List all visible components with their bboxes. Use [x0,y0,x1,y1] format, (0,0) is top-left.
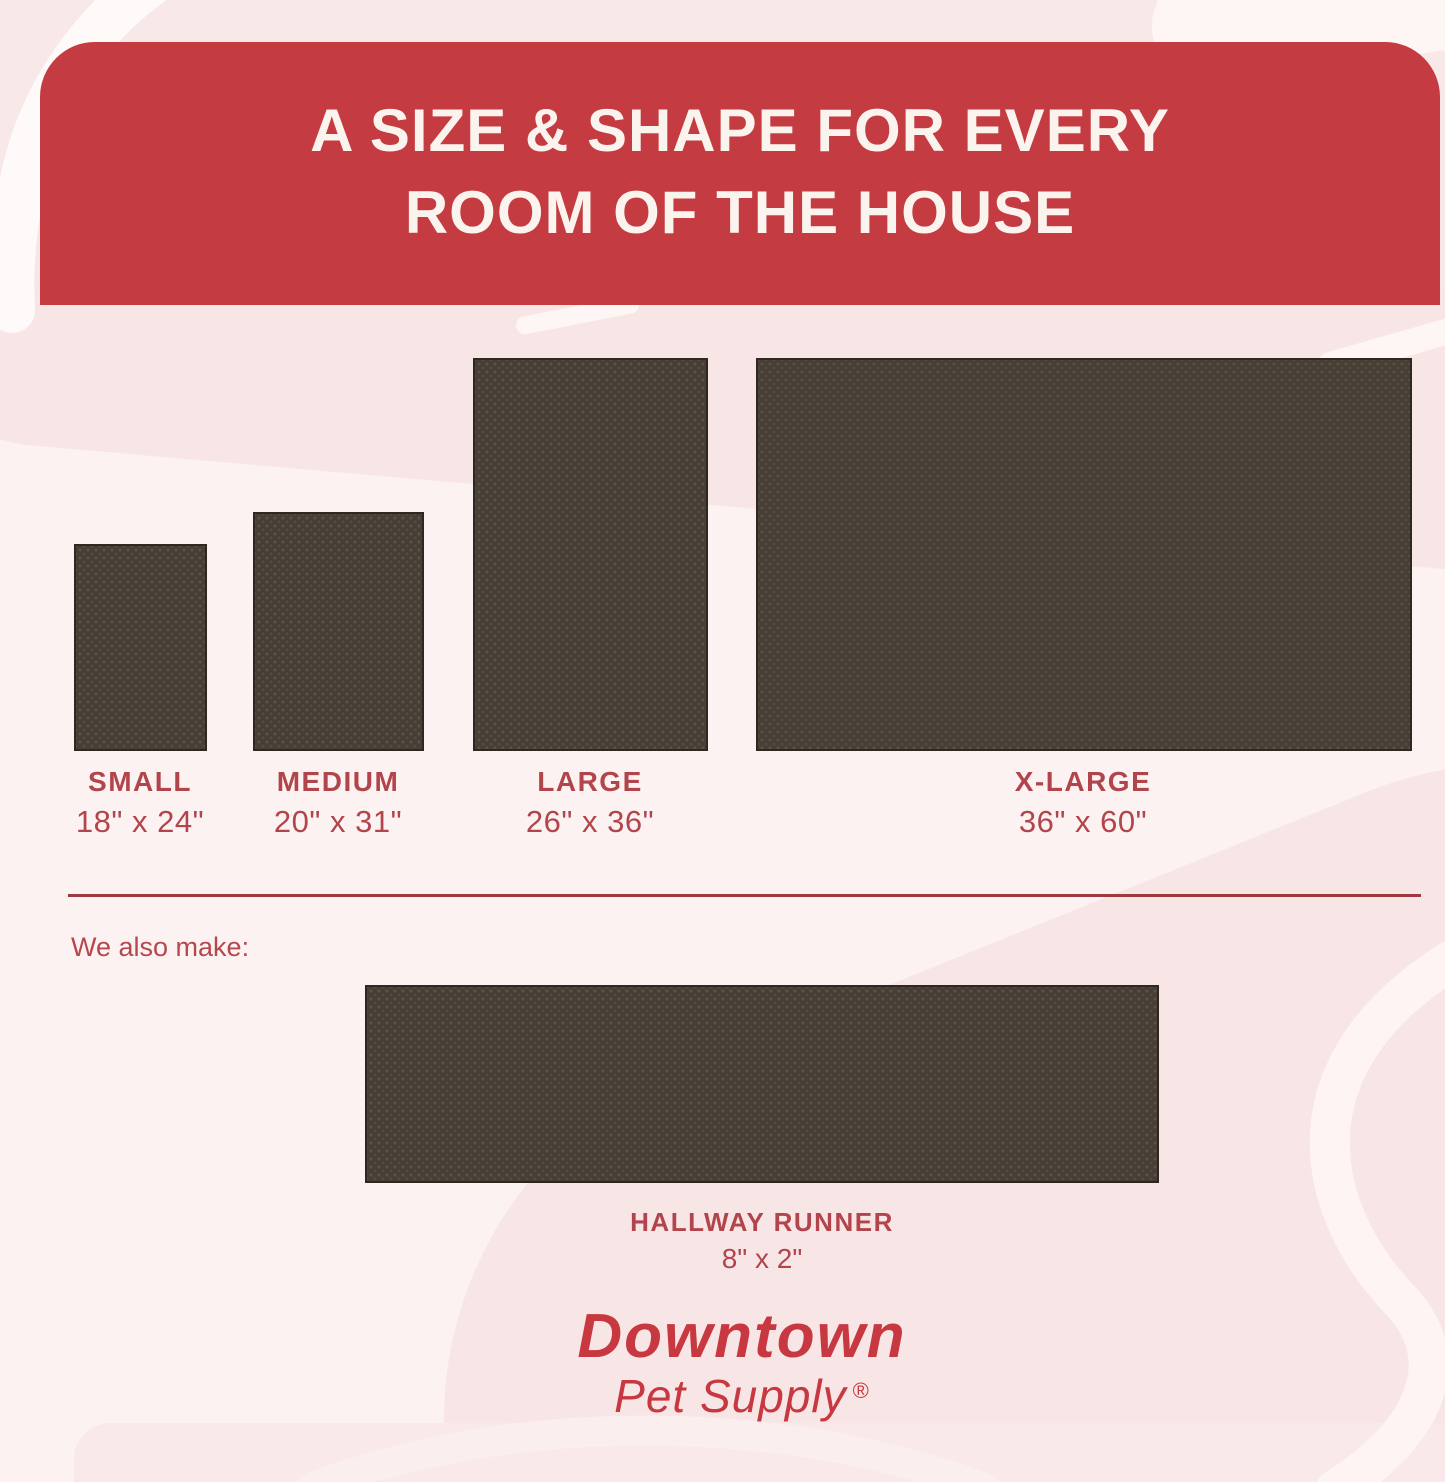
rug-swatch-xlarge [756,358,1412,751]
page-title-line1: A SIZE & SHAPE FOR EVERY [40,90,1440,172]
size-dimensions-medium: 20" x 31" [274,804,402,840]
size-label-xlarge: X-LARGE [1015,766,1152,798]
also-make-label: We also make: [71,932,249,963]
divider-line [68,894,1421,897]
size-dimensions-xlarge: 36" x 60" [1019,804,1147,840]
size-label-large: LARGE [537,766,643,798]
size-label-medium: MEDIUM [277,766,400,798]
brand-subline-text: Pet Supply [614,1370,846,1422]
runner-dimensions: 8" x 2" [722,1243,803,1275]
decorative-pink-band-bottom [74,1423,1445,1482]
page-title: A SIZE & SHAPE FOR EVERY ROOM OF THE HOU… [40,42,1440,254]
rug-swatch-small [74,544,207,751]
size-label-small: SMALL [88,766,192,798]
brand-logo: Downtown Pet Supply® [577,1308,906,1421]
title-banner: A SIZE & SHAPE FOR EVERY ROOM OF THE HOU… [40,42,1440,305]
infographic-page: A SIZE & SHAPE FOR EVERY ROOM OF THE HOU… [0,0,1445,1482]
brand-subline: Pet Supply® [577,1366,906,1421]
rug-swatch-medium [253,512,424,751]
page-title-line2: ROOM OF THE HOUSE [40,172,1440,254]
runner-label: HALLWAY RUNNER [630,1207,894,1238]
size-dimensions-small: 18" x 24" [76,804,204,840]
size-dimensions-large: 26" x 36" [526,804,654,840]
registered-mark-icon: ® [853,1378,870,1403]
rug-swatch-hallway-runner [365,985,1159,1183]
brand-name: Downtown [577,1308,906,1366]
rug-swatch-large [473,358,708,751]
